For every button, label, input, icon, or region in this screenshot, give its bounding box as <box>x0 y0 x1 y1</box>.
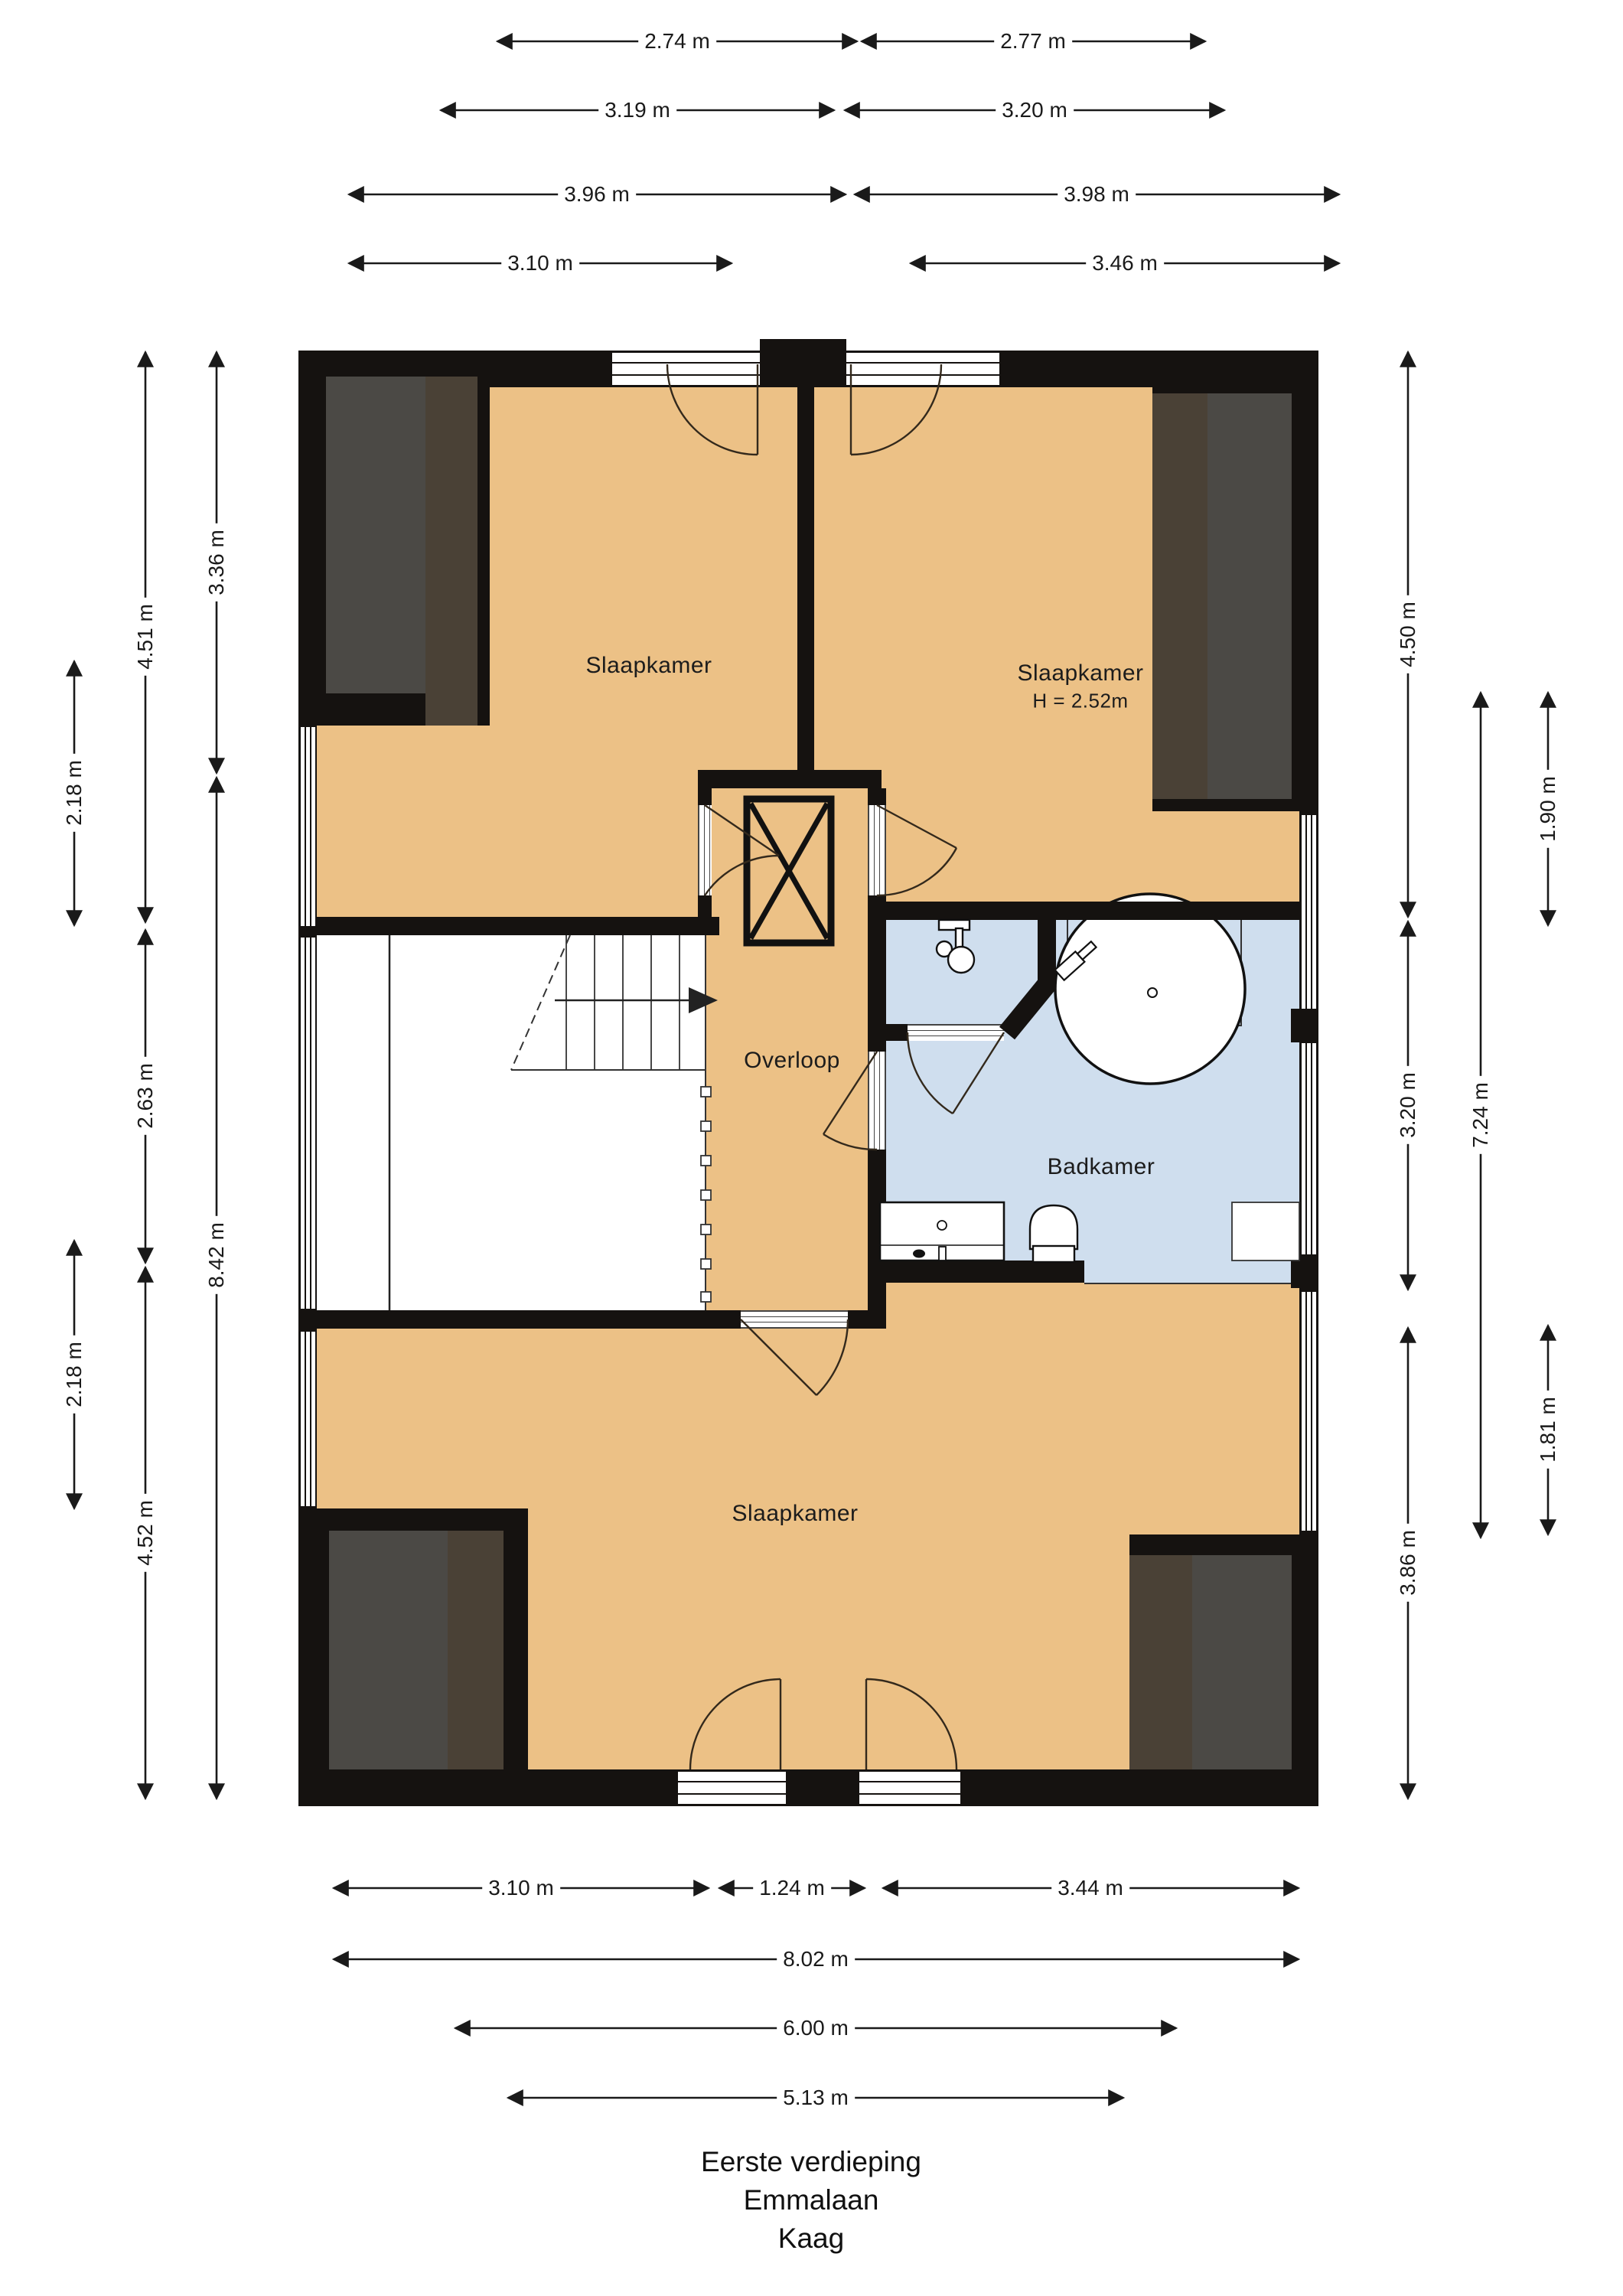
dim-top-277: 2.77 m <box>994 29 1072 54</box>
dim-right-320: 3.20 m <box>1396 1066 1420 1144</box>
dim-left-452: 4.52 m <box>133 1494 158 1572</box>
room-label-bathroom: Badkamer <box>1048 1154 1155 1180</box>
dim-left-451: 4.51 m <box>133 598 158 676</box>
dim-bottom-344: 3.44 m <box>1051 1876 1129 1900</box>
title-block: Eerste verdieping Emmalaan Kaag <box>701 2143 921 2258</box>
dim-top-346: 3.46 m <box>1086 251 1164 276</box>
dim-top-396: 3.96 m <box>558 182 636 207</box>
room-label-bedroom-bottom: Slaapkamer <box>732 1501 858 1527</box>
dim-right-450: 4.50 m <box>1396 595 1420 673</box>
dim-bottom-124: 1.24 m <box>753 1876 831 1900</box>
dim-right-724: 7.24 m <box>1468 1076 1493 1154</box>
wall-toiletnook-diagonal <box>1007 983 1048 1033</box>
stair-winder-edge <box>511 935 570 1070</box>
dim-top-319: 3.19 m <box>598 98 676 122</box>
room-label-bedroom-top-right-height: H = 2.52m <box>1032 690 1128 713</box>
sink-vanity <box>880 1202 1004 1261</box>
dim-right-181: 1.81 m <box>1536 1391 1560 1469</box>
shaft-box <box>747 799 831 943</box>
bathroom-duct-notch <box>1232 1202 1299 1261</box>
dim-bottom-600: 6.00 m <box>777 2016 855 2040</box>
dim-left-336: 3.36 m <box>204 523 229 602</box>
title-street: Emmalaan <box>701 2181 921 2219</box>
dim-bottom-513: 5.13 m <box>777 2086 855 2110</box>
dim-left-218-lower: 2.18 m <box>62 1336 86 1414</box>
dim-right-190: 1.90 m <box>1536 770 1560 848</box>
dim-left-263: 2.63 m <box>133 1057 158 1135</box>
dim-bottom-310: 3.10 m <box>482 1876 560 1900</box>
dim-top-398: 3.98 m <box>1058 182 1136 207</box>
dim-bottom-802: 8.02 m <box>777 1947 855 1971</box>
room-label-bedroom-top-right: Slaapkamer <box>1017 660 1143 687</box>
title-city: Kaag <box>701 2219 921 2258</box>
dim-left-218-upper: 2.18 m <box>62 754 86 832</box>
dim-top-274: 2.74 m <box>638 29 716 54</box>
dim-right-386: 3.86 m <box>1396 1524 1420 1602</box>
title-floor: Eerste verdieping <box>701 2143 921 2181</box>
toilet-lower <box>1030 1205 1077 1262</box>
floorplan-page: 2.74 m 2.77 m 3.19 m 3.20 m 3.96 m 3.98 … <box>0 0 1623 2296</box>
room-label-landing: Overloop <box>744 1048 840 1074</box>
room-label-bedroom-top-left: Slaapkamer <box>585 653 712 679</box>
dim-top-310: 3.10 m <box>501 251 579 276</box>
toilet-upper <box>937 920 974 973</box>
dim-top-320: 3.20 m <box>996 98 1074 122</box>
stair-direction-arrowhead <box>689 987 718 1013</box>
dim-left-842: 8.42 m <box>204 1216 229 1294</box>
stair-treads <box>566 935 680 1070</box>
